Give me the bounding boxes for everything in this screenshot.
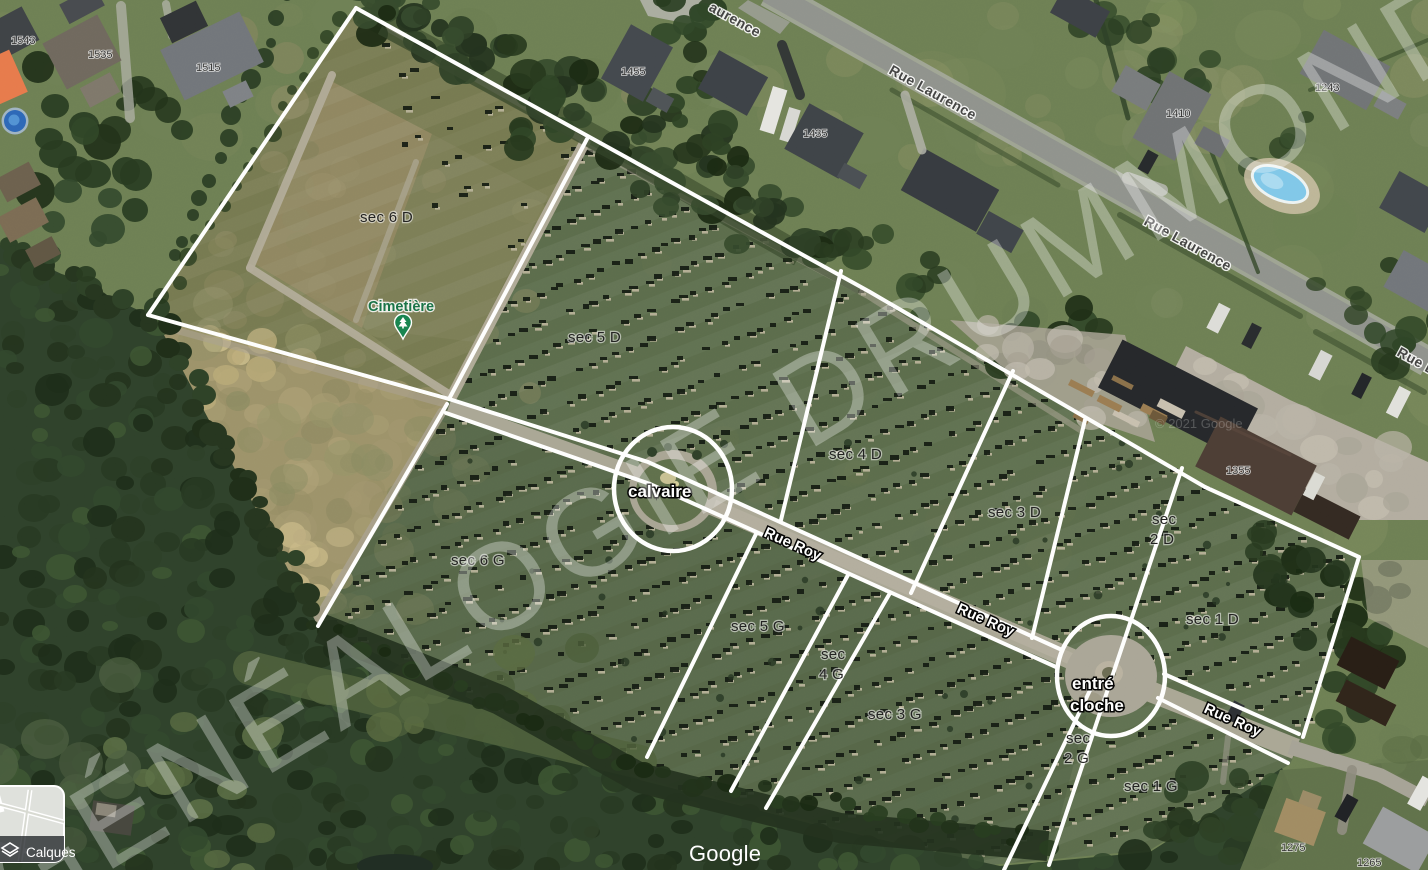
svg-text:Calques: Calques	[26, 845, 76, 860]
svg-text:Google: Google	[689, 841, 761, 866]
